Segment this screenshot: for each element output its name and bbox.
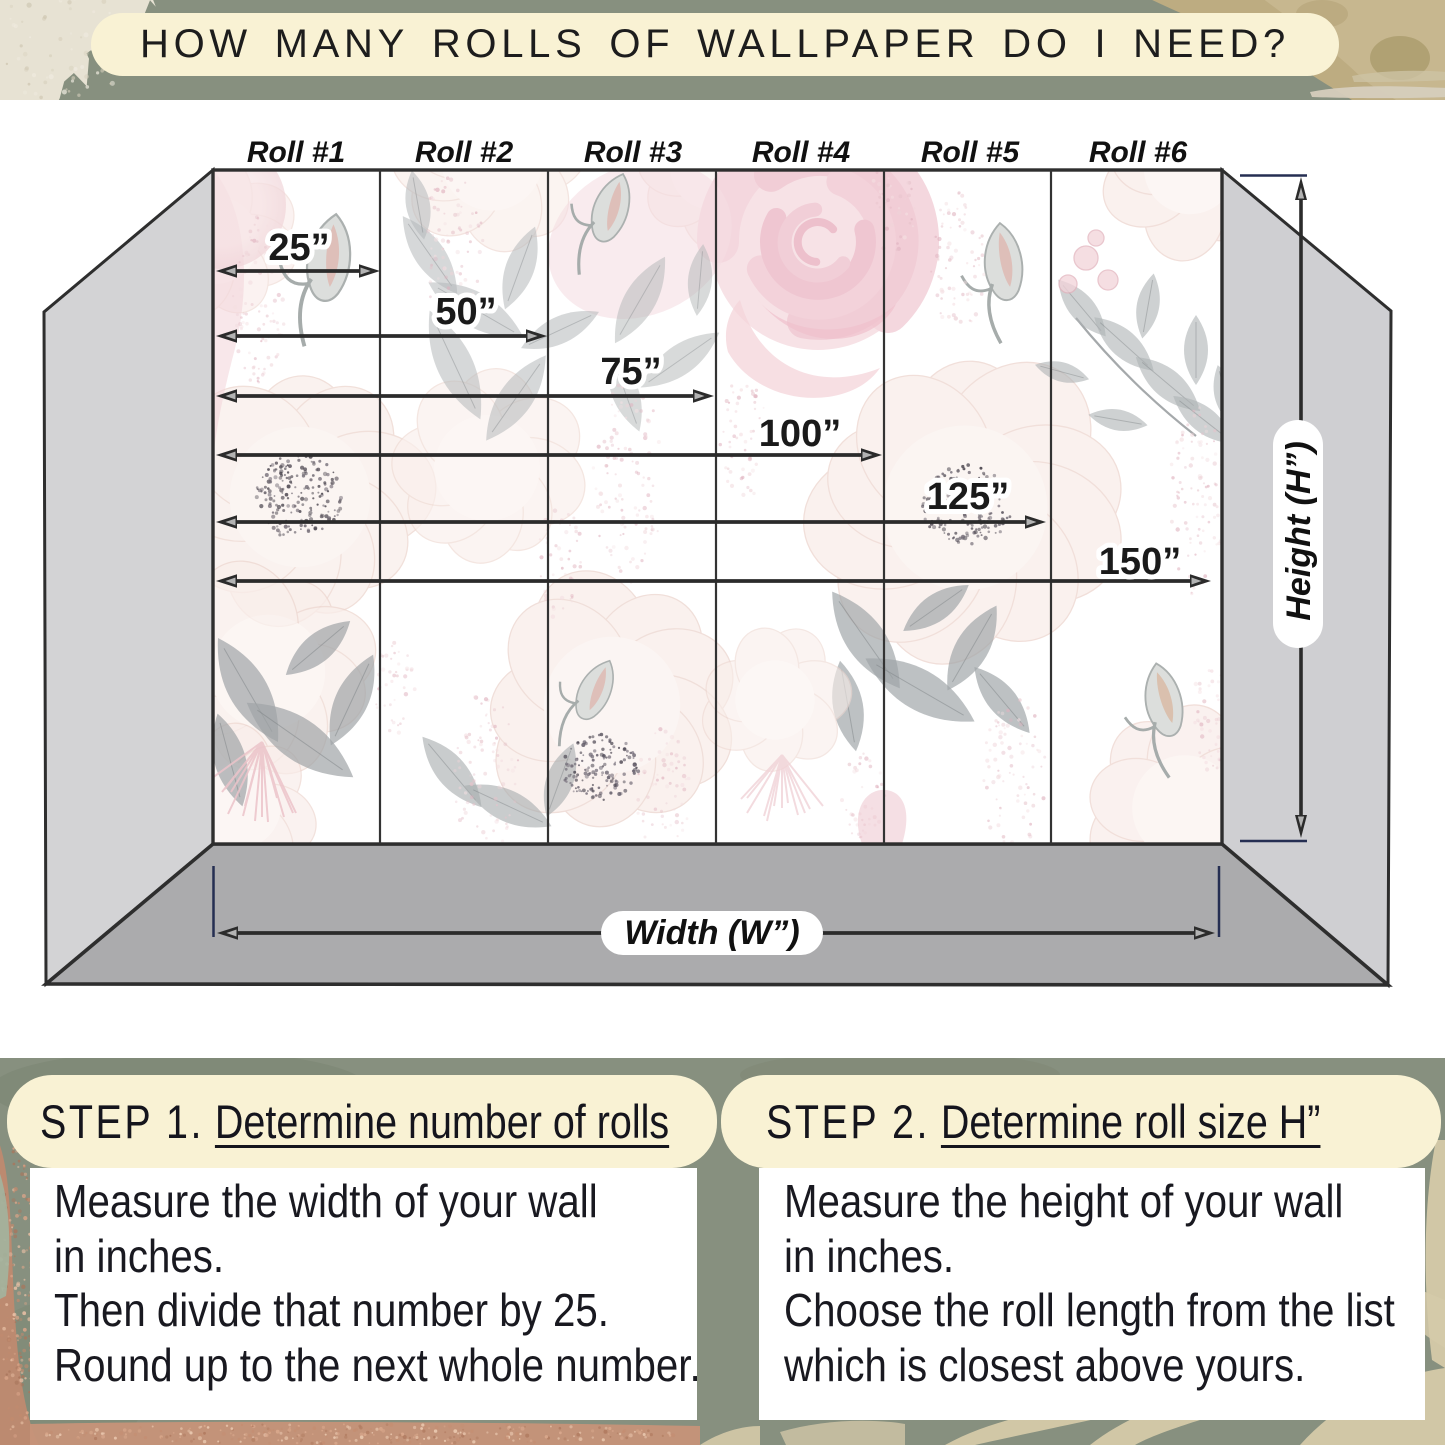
svg-text:Roll #1: Roll #1 [247,136,345,169]
svg-text:125”: 125” [927,476,1009,518]
svg-text:150”: 150” [1099,541,1181,583]
svg-text:Roll #4: Roll #4 [752,136,851,169]
svg-text:Roll #6: Roll #6 [1089,136,1188,169]
svg-text:25”: 25” [268,227,329,269]
svg-text:75”: 75” [600,351,661,393]
svg-text:Roll #5: Roll #5 [921,136,1021,169]
svg-text:Roll #3: Roll #3 [584,136,683,169]
svg-text:50”: 50” [435,291,496,333]
svg-text:Width (W”): Width (W”) [624,914,799,952]
svg-text:Roll #2: Roll #2 [415,136,514,169]
svg-text:Height (H”): Height (H”) [1280,441,1318,620]
svg-text:100”: 100” [759,413,841,455]
